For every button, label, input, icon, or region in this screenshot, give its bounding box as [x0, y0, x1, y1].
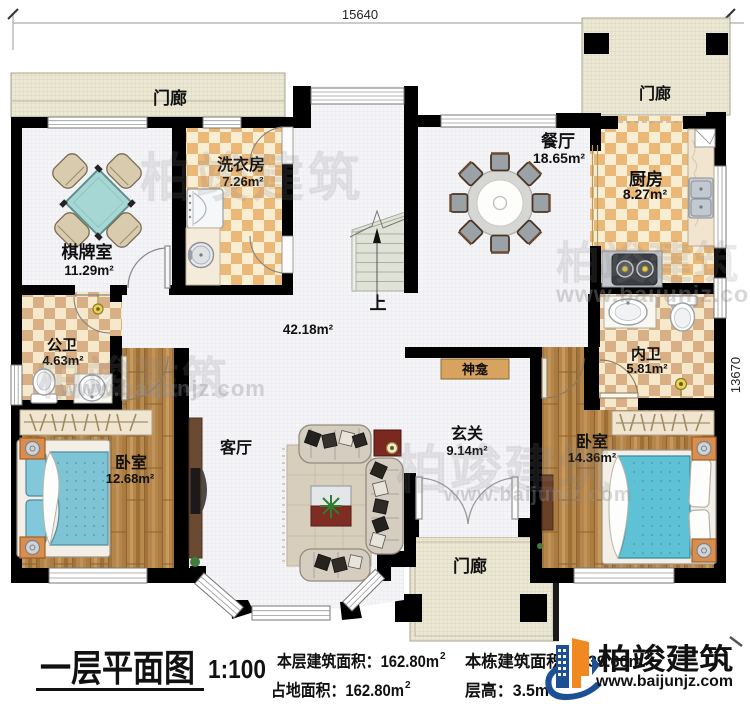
svg-text:18.65m²: 18.65m²: [533, 150, 585, 166]
svg-text:42.18m²: 42.18m²: [283, 322, 334, 337]
svg-text:玄关: 玄关: [451, 424, 483, 443]
svg-text:层高：3.5m: 层高：3.5m: [465, 680, 549, 700]
svg-text:5.81m²: 5.81m²: [626, 361, 668, 376]
svg-text:上: 上: [370, 294, 387, 313]
svg-text:www.baijunjz.com: www.baijunjz.com: [443, 484, 633, 506]
svg-text:柏竣建筑: 柏竣建筑: [598, 642, 733, 676]
svg-text:www.baijunjz.com: www.baijunjz.com: [555, 281, 750, 307]
svg-text:门廊: 门廊: [639, 84, 671, 103]
svg-text:门廊: 门廊: [453, 556, 487, 576]
svg-text:2: 2: [405, 680, 411, 691]
svg-text:11.29m²: 11.29m²: [64, 263, 114, 278]
svg-text:卧室: 卧室: [115, 453, 147, 472]
svg-text:客厅: 客厅: [220, 438, 252, 457]
svg-text:公卫: 公卫: [47, 337, 77, 354]
svg-text:13670: 13670: [728, 357, 743, 393]
svg-text:1:100: 1:100: [208, 654, 266, 684]
svg-text:棋牌室: 棋牌室: [62, 242, 113, 262]
svg-text:门廊: 门廊: [153, 88, 187, 108]
svg-text:一层平面图: 一层平面图: [40, 648, 195, 689]
svg-text:柏竣建筑: 柏竣建筑: [140, 150, 364, 208]
svg-text:本层建筑面积：162.80m: 本层建筑面积：162.80m: [277, 651, 439, 671]
svg-text:www.baijunjz.com: www.baijunjz.com: [595, 673, 733, 690]
svg-text:www.baijunjz.com: www.baijunjz.com: [59, 376, 266, 401]
svg-text:神龛: 神龛: [462, 362, 489, 377]
svg-text:占地面积：162.80m: 占地面积：162.80m: [271, 680, 404, 700]
svg-text:15640: 15640: [342, 7, 378, 22]
svg-text:12.68m²: 12.68m²: [106, 471, 155, 486]
svg-text:2: 2: [440, 651, 446, 662]
svg-text:餐厅: 餐厅: [541, 131, 575, 151]
svg-text:8.27m²: 8.27m²: [623, 186, 668, 202]
